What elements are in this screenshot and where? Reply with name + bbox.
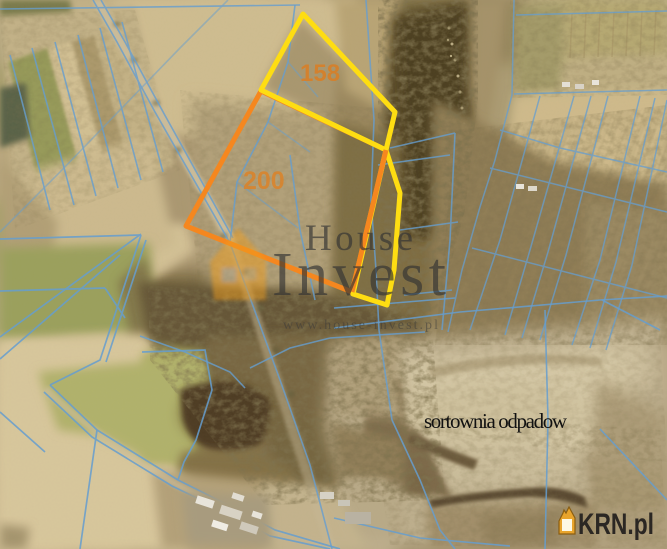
svg-text:158: 158	[300, 60, 340, 87]
svg-text:KRN.pl: KRN.pl	[578, 508, 654, 541]
svg-text:Invest: Invest	[272, 241, 446, 309]
svg-text:200: 200	[243, 167, 285, 195]
svg-text:sortownia odpadow: sortownia odpadow	[424, 409, 568, 433]
